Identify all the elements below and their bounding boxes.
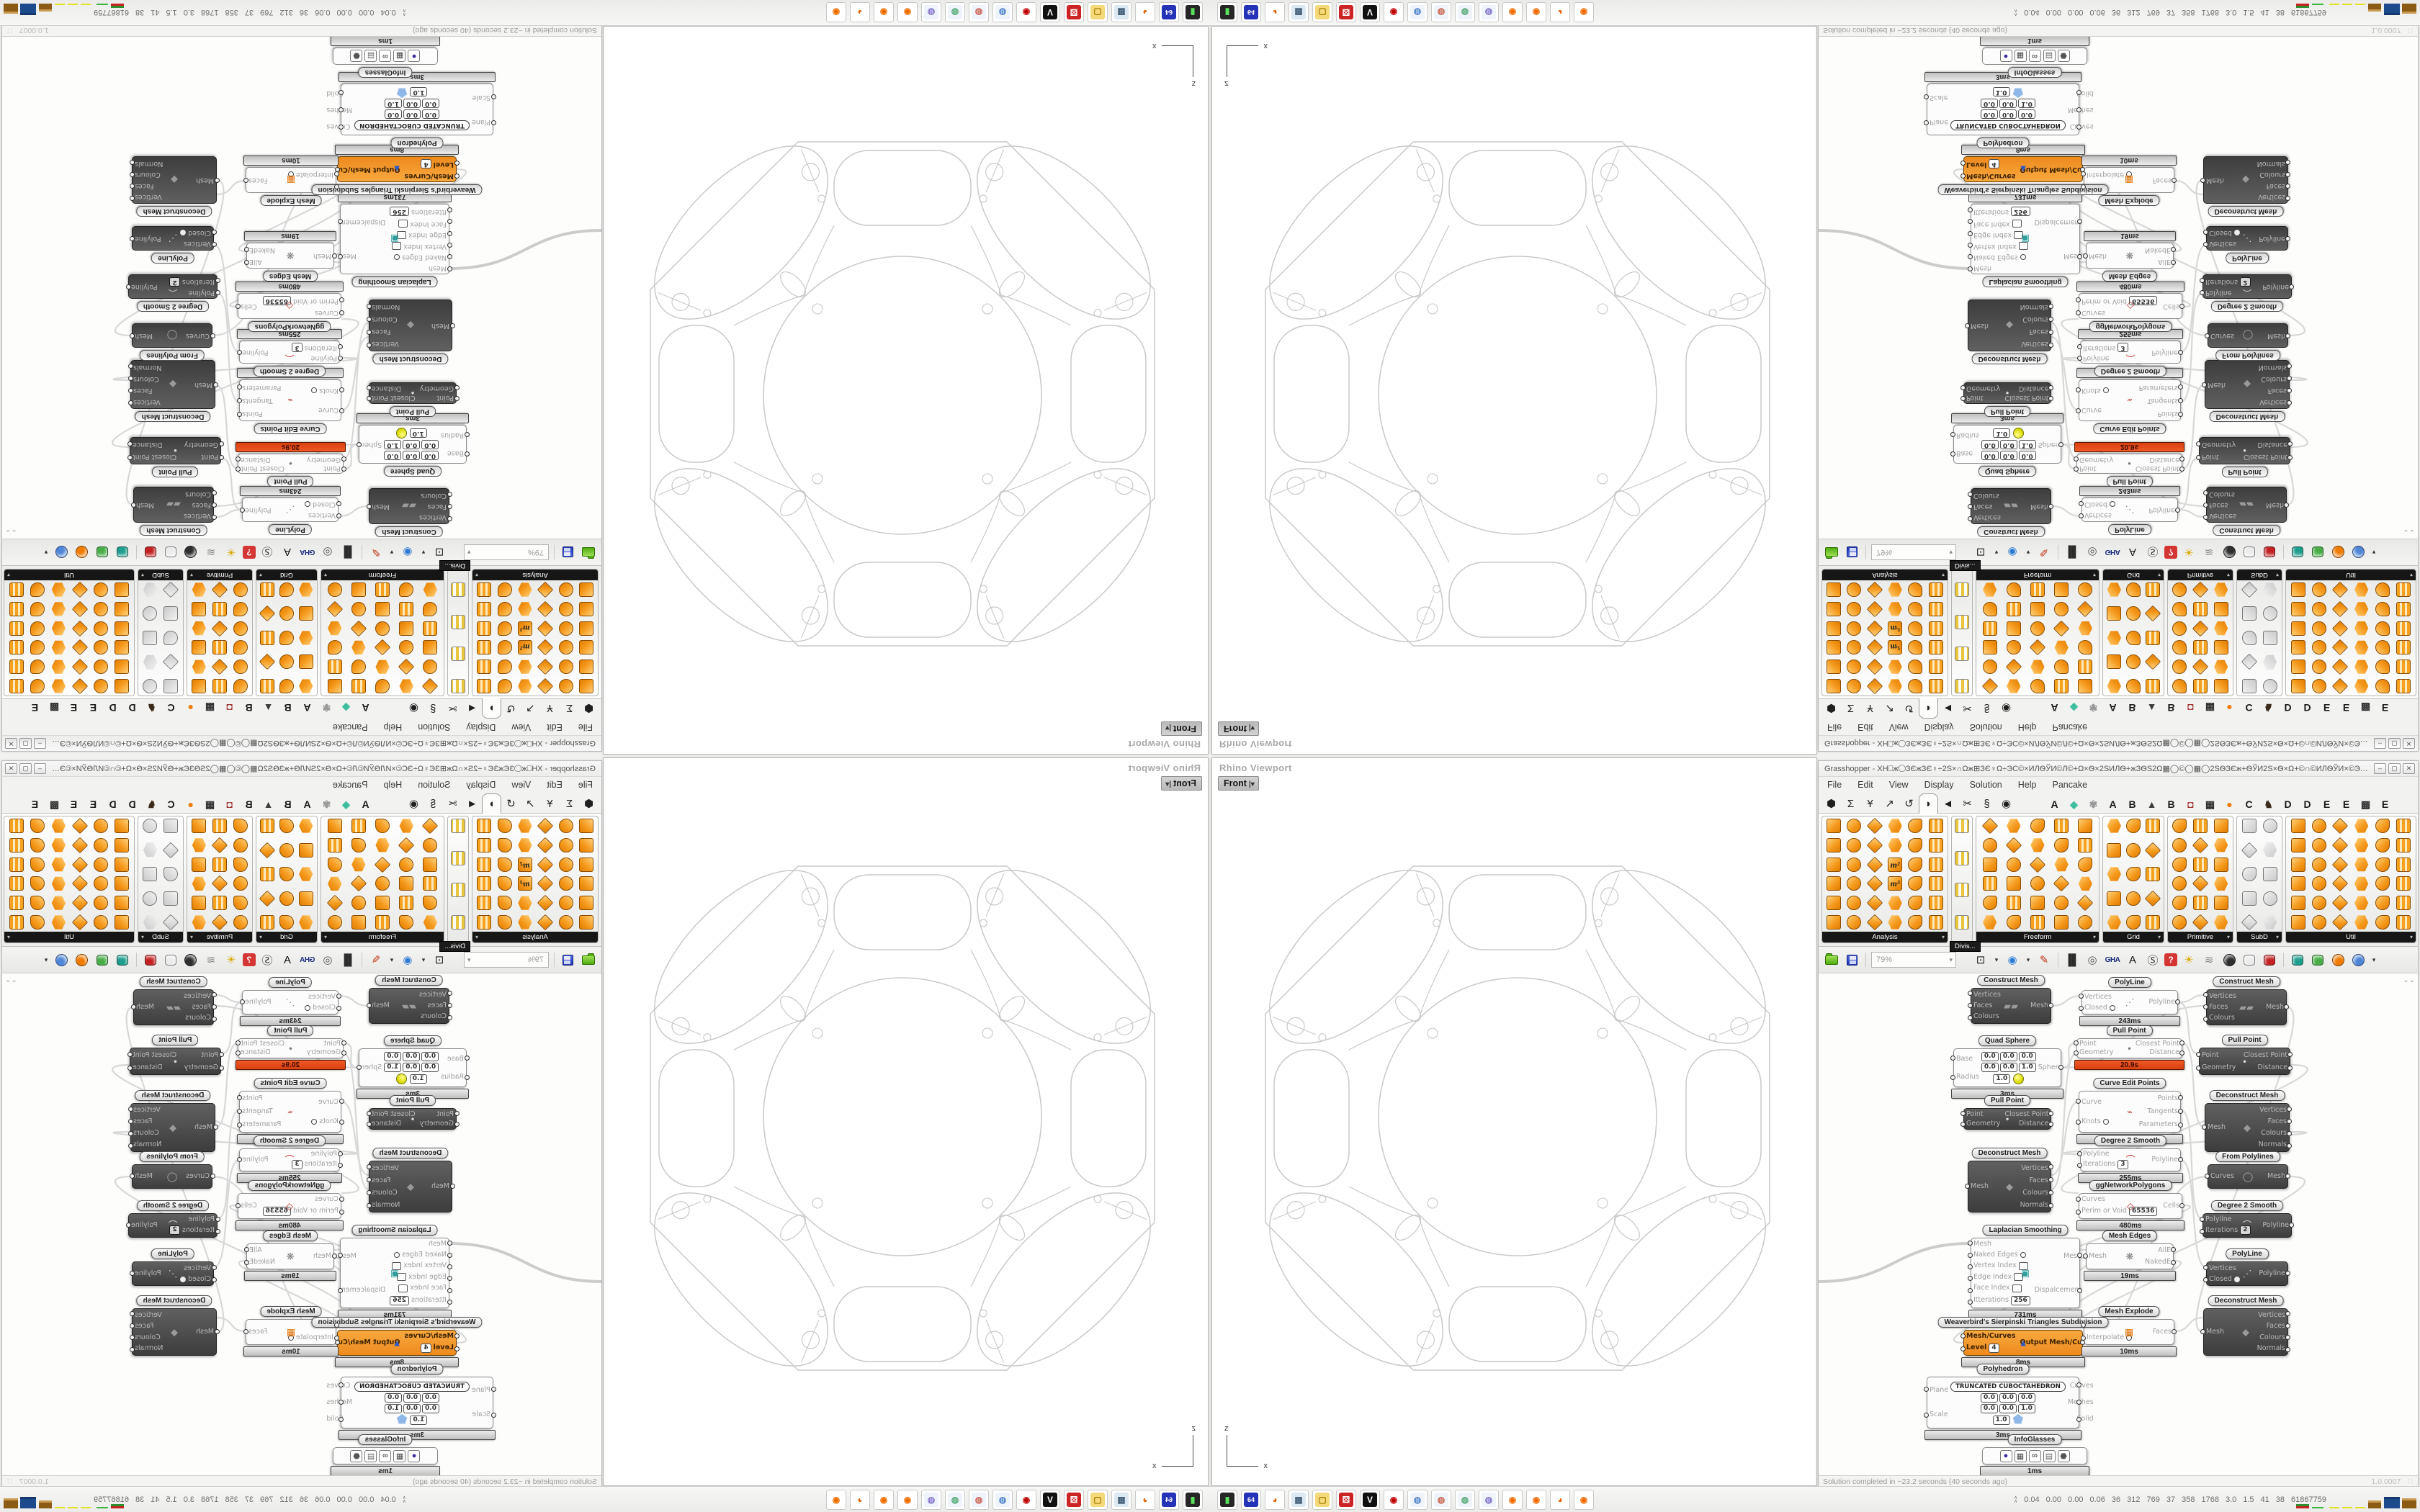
component-icon[interactable] <box>1846 895 1862 911</box>
output-port[interactable] <box>2076 125 2081 130</box>
firefox-icon[interactable]: ◕ <box>850 2 870 22</box>
component-icon[interactable] <box>2213 857 2229 873</box>
component-icon[interactable] <box>351 601 367 617</box>
component-icon[interactable] <box>1826 914 1842 930</box>
input-port[interactable] <box>2203 1265 2208 1270</box>
component-icon[interactable] <box>72 582 88 598</box>
plugin-tab-17[interactable]: E <box>2375 699 2395 716</box>
input-port[interactable] <box>212 992 217 997</box>
component-icon[interactable] <box>1982 876 1998 891</box>
component-icon[interactable] <box>2192 601 2208 617</box>
node-quad-sphere[interactable]: BaseRadius0.00.00.00.00.01.01.0Sphere <box>1953 1048 2061 1087</box>
component-icon[interactable] <box>2375 582 2390 598</box>
component-icon[interactable] <box>2172 818 2187 834</box>
zoom-dropdown-arrow[interactable]: ▾ <box>1992 544 2001 561</box>
component-icon[interactable] <box>191 639 207 655</box>
component-icon[interactable] <box>2192 876 2208 891</box>
panel-label-freeform[interactable]: Freeform▾ <box>1976 932 2099 942</box>
component-icon[interactable] <box>1928 857 1944 873</box>
input-port[interactable] <box>454 386 460 391</box>
number-field[interactable]: 1.0 <box>410 429 427 438</box>
input-port[interactable] <box>465 452 470 457</box>
input-port[interactable] <box>215 1229 220 1234</box>
component-icon[interactable] <box>578 621 594 636</box>
plugin-tab-6[interactable]: B <box>2161 796 2181 813</box>
output-port[interactable] <box>367 330 372 335</box>
finder-icon[interactable]: Ⓢ <box>2144 951 2161 968</box>
input-port[interactable] <box>212 1265 217 1270</box>
input-port[interactable] <box>1965 323 1970 328</box>
calculator-icon[interactable]: ▦ <box>1289 2 1309 22</box>
number-field[interactable]: 1.0 <box>1993 88 2010 97</box>
component-icon[interactable] <box>2375 895 2390 911</box>
component-icon[interactable] <box>1826 621 1842 636</box>
component-icon[interactable] <box>259 842 275 858</box>
grasshopper-window[interactable]: Grasshopper - ХН⎕ж◯ЗЄжЗЄ♀÷2S×∩Ωж⊞ЗЄ♀Ω÷ЭС… <box>1 760 602 1488</box>
component-icon[interactable] <box>497 818 513 834</box>
component-icon[interactable] <box>2290 837 2306 853</box>
sketch-pencil-icon[interactable]: ✎ <box>2035 544 2053 561</box>
panel-expand-arrow[interactable]: ▾ <box>2410 570 2413 580</box>
component-icon[interactable] <box>497 876 513 891</box>
input-port[interactable] <box>447 492 452 497</box>
panel-label-util[interactable]: Util▾ <box>2286 932 2416 942</box>
component-icon[interactable] <box>1982 621 1998 636</box>
component-icon[interactable] <box>351 818 367 834</box>
component-icon[interactable] <box>2396 876 2411 891</box>
output-port[interactable] <box>335 1340 340 1345</box>
component-icon[interactable] <box>450 882 466 898</box>
component-icon[interactable] <box>2375 876 2390 891</box>
node-deconstruct-mesh[interactable]: MeshVerticesFacesColoursNormals◆ <box>132 1308 217 1356</box>
component-icon[interactable] <box>578 639 594 655</box>
input-port[interactable] <box>341 1040 346 1045</box>
component-icon[interactable] <box>1826 582 1842 598</box>
component-icon[interactable] <box>2311 582 2327 598</box>
input-port[interactable] <box>219 1066 224 1071</box>
output-port[interactable] <box>2178 398 2183 403</box>
plugin-tab-17[interactable]: E <box>25 796 45 813</box>
component-icon[interactable] <box>93 837 109 853</box>
component-icon[interactable] <box>2332 818 2348 834</box>
input-port[interactable] <box>219 442 224 447</box>
component-icon[interactable] <box>279 678 295 694</box>
component-icon[interactable] <box>476 582 492 598</box>
component-icon[interactable] <box>351 678 367 694</box>
blue-dropdown-arrow[interactable]: ▾ <box>42 951 50 968</box>
component-icon[interactable] <box>1982 837 1998 853</box>
component-icon[interactable] <box>2172 621 2187 636</box>
input-port[interactable] <box>2081 184 2086 189</box>
component-icon[interactable] <box>163 891 179 906</box>
component-icon[interactable] <box>2077 876 2093 891</box>
input-port[interactable] <box>212 490 217 495</box>
preview-red-cylinder[interactable] <box>2261 951 2278 968</box>
component-icon[interactable] <box>558 895 574 911</box>
component-icon[interactable] <box>298 866 314 882</box>
output-port[interactable] <box>130 1323 135 1328</box>
output-port[interactable] <box>130 333 135 338</box>
preview-dark-ball[interactable] <box>182 544 200 561</box>
component-icon[interactable] <box>30 678 45 694</box>
preview-green-cylinder[interactable] <box>94 544 111 561</box>
preview-blue-ball[interactable] <box>53 544 71 561</box>
component-icon[interactable] <box>2213 818 2229 834</box>
floppy64-icon[interactable]: 64 <box>1159 1490 1179 1510</box>
node-construct-mesh[interactable]: VerticesFacesColoursMesh▰▰ <box>1971 988 2051 1024</box>
node-pull-point[interactable]: PointGeometryClosest PointDistance• <box>238 454 344 474</box>
script-icon[interactable]: A <box>279 951 296 968</box>
zoom-dropdown-arrow[interactable]: ▾ <box>1949 549 1953 557</box>
output-port[interactable] <box>240 999 245 1004</box>
area-moment-icon[interactable]: m² <box>1887 857 1903 873</box>
component-icon[interactable] <box>114 582 130 598</box>
component-icon[interactable] <box>2006 818 2022 834</box>
output-port[interactable] <box>2287 364 2292 369</box>
component-icon[interactable] <box>537 601 553 617</box>
component-icon[interactable] <box>351 639 367 655</box>
component-icon[interactable] <box>72 601 88 617</box>
component-icon[interactable] <box>2332 601 2348 617</box>
output-port[interactable] <box>2287 389 2292 394</box>
component-icon[interactable] <box>2213 582 2229 598</box>
component-icon[interactable] <box>2396 857 2411 873</box>
grasshopper-window[interactable]: Grasshopper - ХН⎕ж◯ЗЄжЗЄ♀÷2S×∩Ωж⊞ЗЄ♀Ω÷ЭС… <box>1818 760 2419 1488</box>
component-icon[interactable] <box>2354 837 2370 853</box>
component-icon[interactable] <box>2030 818 2045 834</box>
component-icon[interactable] <box>375 639 390 655</box>
node-mesh-edges[interactable]: MeshAllENakedE❋ <box>2086 1243 2174 1269</box>
component-icon[interactable] <box>93 857 109 873</box>
component-icon[interactable] <box>143 891 158 906</box>
component-icon[interactable] <box>2077 914 2093 930</box>
component-icon[interactable] <box>558 837 574 853</box>
zoom-dropdown-arrow[interactable]: ▾ <box>1949 956 1953 964</box>
component-icon[interactable] <box>50 876 66 891</box>
blender-icon[interactable]: ◉ <box>1502 2 1523 22</box>
component-icon[interactable] <box>2396 582 2411 598</box>
input-port[interactable] <box>1968 1015 1973 1020</box>
expand-chevrons-icon[interactable]: ∧∧ <box>2014 1496 2017 1503</box>
output-port[interactable] <box>126 1223 131 1228</box>
tab-surface[interactable]: ◗ <box>1919 793 1938 814</box>
media-disc-icon[interactable]: ◉ <box>1384 2 1404 22</box>
preview-red-cylinder[interactable] <box>142 951 159 968</box>
component-icon[interactable] <box>9 639 24 655</box>
node-polyline[interactable]: VerticesClosedPolyline⋰ <box>242 990 339 1014</box>
component-icon[interactable] <box>1846 621 1862 636</box>
component-icon[interactable] <box>2106 606 2122 622</box>
component-icon[interactable] <box>2192 857 2208 873</box>
system-monitor-icon[interactable]: ▮ <box>1217 2 1237 22</box>
number-field[interactable]: 0.0 <box>421 1063 439 1072</box>
file-manager-icon[interactable]: ▢ <box>1088 1490 1108 1510</box>
component-icon[interactable] <box>2311 659 2327 675</box>
plugin-tab-0[interactable]: A <box>2045 699 2064 716</box>
output-port[interactable] <box>244 260 249 265</box>
component-icon[interactable] <box>2332 914 2348 930</box>
panel-label-subd[interactable]: SubD▾ <box>2237 570 2282 580</box>
plugin-tab-8[interactable]: ▦ <box>2200 699 2220 716</box>
component-icon[interactable] <box>30 857 45 873</box>
component-icon[interactable] <box>327 639 343 655</box>
number-field[interactable]: 1.0 <box>385 1404 402 1413</box>
output-port[interactable] <box>2048 397 2053 402</box>
output-port[interactable] <box>2048 504 2053 509</box>
output-port[interactable] <box>2076 107 2081 112</box>
menu-file[interactable]: File <box>1827 780 1842 790</box>
component-icon[interactable] <box>2125 606 2141 622</box>
component-icon[interactable] <box>497 601 513 617</box>
component-icon[interactable] <box>2262 630 2278 646</box>
help-box-icon[interactable]: ? <box>2164 953 2177 966</box>
input-port[interactable] <box>2203 1277 2208 1282</box>
component-icon[interactable] <box>2213 678 2229 694</box>
panel-expand-arrow[interactable]: ▾ <box>1942 570 1945 580</box>
component-icon[interactable] <box>114 837 130 853</box>
component-icon[interactable] <box>2396 659 2411 675</box>
output-port[interactable] <box>2076 90 2081 95</box>
tab-mesh[interactable]: ◄ <box>1938 796 1958 813</box>
component-icon[interactable] <box>2213 895 2229 911</box>
output-port[interactable] <box>2287 1066 2293 1071</box>
output-port[interactable] <box>2048 1190 2053 1195</box>
node-construct-mesh[interactable]: VerticesFacesColoursMesh▰▰ <box>369 988 449 1024</box>
component-icon[interactable] <box>1887 818 1903 834</box>
component-icon[interactable] <box>114 818 130 834</box>
plugin-tab-11[interactable]: ♞ <box>142 699 161 716</box>
output-port[interactable] <box>367 1190 372 1195</box>
component-icon[interactable] <box>1907 582 1923 598</box>
node-deconstruct-mesh[interactable]: MeshVerticesFacesColoursNormals◆ <box>1968 1161 2051 1212</box>
maximize-button[interactable]: ▢ <box>2388 738 2401 749</box>
preview-teal-cylinder[interactable] <box>114 951 131 968</box>
component-icon[interactable] <box>497 621 513 636</box>
menu-file[interactable]: File <box>578 780 593 790</box>
component-icon[interactable] <box>72 659 88 675</box>
calculator-icon[interactable]: ▦ <box>1111 2 1131 22</box>
component-icon[interactable] <box>1826 601 1842 617</box>
component-icon[interactable] <box>2332 678 2348 694</box>
component-icon[interactable] <box>2354 639 2370 655</box>
component-icon[interactable] <box>93 818 109 834</box>
input-port[interactable] <box>2074 456 2079 462</box>
component-icon[interactable] <box>212 621 228 636</box>
input-port[interactable] <box>447 1288 452 1293</box>
output-port[interactable] <box>2080 1340 2085 1345</box>
preview-dropdown-arrow[interactable]: ▾ <box>387 544 396 561</box>
component-icon[interactable] <box>50 659 66 675</box>
output-port[interactable] <box>2178 350 2183 355</box>
node-curve-edit-points[interactable]: CurveKnotsPointsTangentsParameters⌁ <box>239 1091 341 1133</box>
component-icon[interactable] <box>93 876 109 891</box>
camera-icon[interactable]: ▐▌ <box>2063 544 2081 561</box>
number-field[interactable]: 1.0 <box>2018 99 2035 109</box>
component-icon[interactable] <box>163 582 179 598</box>
node-pull-point[interactable]: PointGeometryClosest PointDistance• <box>130 1048 221 1075</box>
input-port[interactable] <box>447 991 452 996</box>
blender-icon[interactable]: ◉ <box>1574 2 1594 22</box>
component-icon[interactable] <box>2106 891 2122 906</box>
input-port[interactable] <box>1960 1346 1966 1351</box>
component-icon[interactable] <box>1954 818 1970 834</box>
node-infoglasses[interactable]: ●▦∞▤⬣ <box>1982 48 2087 65</box>
output-port[interactable] <box>128 1131 133 1136</box>
output-port[interactable] <box>2058 442 2063 447</box>
zoom-dropdown-arrow[interactable]: ▾ <box>467 549 471 557</box>
calculator-icon[interactable]: ▦ <box>1289 1490 1309 1510</box>
number-field[interactable]: 1.0 <box>1993 1416 2010 1425</box>
output-port[interactable] <box>237 1109 242 1114</box>
component-icon[interactable] <box>30 639 45 655</box>
output-port[interactable] <box>2179 467 2184 472</box>
component-icon[interactable] <box>93 639 109 655</box>
input-port[interactable] <box>2200 1329 2205 1334</box>
component-icon[interactable] <box>1907 876 1923 891</box>
component-icon[interactable] <box>2172 601 2187 617</box>
input-port[interactable] <box>212 1004 217 1009</box>
panel-label-analysis[interactable]: Analysis▾ <box>472 570 598 580</box>
canvas-collapse-icon[interactable]: ⌄⌄ <box>5 978 17 983</box>
paint-app-icon[interactable]: ◍ <box>945 1490 965 1510</box>
resize-grip[interactable]: ∷ <box>2408 27 2414 35</box>
output-port[interactable] <box>236 456 241 462</box>
input-port[interactable] <box>447 220 452 225</box>
gha-plugin-icon[interactable]: GHA <box>2104 544 2121 561</box>
node-construct-mesh[interactable]: VerticesFacesColoursMesh▰▰ <box>369 488 449 524</box>
plugin-tab-14[interactable]: E <box>2317 699 2336 716</box>
component-icon[interactable] <box>233 818 248 834</box>
input-port[interactable] <box>1968 504 1973 509</box>
panel-expand-arrow[interactable]: ▾ <box>2276 932 2279 942</box>
plugin-tab-6[interactable]: B <box>239 699 259 716</box>
number-field[interactable]: 0.0 <box>422 1404 439 1413</box>
menu-display[interactable]: Display <box>466 722 496 732</box>
node-laplacian-smoothing[interactable]: MeshNaked EdgesVertex IndexEdge IndexFac… <box>1971 1238 2080 1308</box>
component-icon[interactable] <box>558 914 574 930</box>
plugin-tab-3[interactable]: A <box>2103 699 2123 716</box>
maximize-button[interactable]: ▢ <box>19 763 32 774</box>
component-icon[interactable] <box>1887 895 1903 911</box>
component-icon[interactable] <box>279 654 295 670</box>
calculator-icon[interactable]: ▦ <box>1111 1490 1131 1510</box>
panel-label-grid[interactable]: Grid▾ <box>256 932 317 942</box>
node-from-polylines[interactable]: CurvesMesh◯ <box>132 1164 212 1189</box>
maximize-button[interactable]: ▢ <box>2388 763 2401 774</box>
input-port[interactable] <box>339 1099 344 1104</box>
node-polyline[interactable]: VerticesClosedPolyline⋰ <box>132 1261 214 1286</box>
input-port[interactable] <box>491 1413 496 1418</box>
node-deconstruct-mesh[interactable]: MeshVerticesFacesColoursNormals◆ <box>2205 360 2290 409</box>
input-port[interactable] <box>2196 1052 2201 1057</box>
input-port[interactable] <box>219 1052 224 1057</box>
component-icon[interactable] <box>2332 837 2348 853</box>
component-icon[interactable] <box>9 601 24 617</box>
grasshopper-canvas[interactable]: ⌄⌄ Construct MeshVerticesFacesColoursMes… <box>2 973 601 1475</box>
component-icon[interactable] <box>1846 678 1862 694</box>
output-port[interactable] <box>367 1177 372 1182</box>
component-icon[interactable] <box>1846 601 1862 617</box>
node-quad-sphere[interactable]: BaseRadius0.00.00.00.00.01.01.0Sphere <box>359 1048 467 1087</box>
input-port[interactable] <box>2202 382 2207 387</box>
zoom-dropdown-arrow[interactable]: ▾ <box>419 951 428 968</box>
output-port[interactable] <box>2179 1040 2184 1045</box>
component-icon[interactable] <box>114 857 130 873</box>
component-icon[interactable] <box>558 818 574 834</box>
expand-chevrons-icon[interactable]: ∧∧ <box>403 1496 406 1503</box>
output-port[interactable] <box>126 284 131 289</box>
plugin-tab-5[interactable]: ▲ <box>2142 796 2161 813</box>
component-icon[interactable] <box>398 659 414 675</box>
panel-expand-arrow[interactable]: ▾ <box>259 932 262 942</box>
output-port[interactable] <box>2172 1329 2177 1334</box>
output-port[interactable] <box>2077 1253 2082 1258</box>
component-icon[interactable] <box>2172 678 2187 694</box>
plugin-tab-16[interactable]: ▩ <box>2356 699 2375 716</box>
panel-expand-arrow[interactable]: ▾ <box>1942 932 1945 942</box>
input-port[interactable] <box>1968 1300 1973 1305</box>
number-field[interactable]: 1.0 <box>384 1063 401 1072</box>
plugin-tab-14[interactable]: E <box>2317 796 2336 813</box>
component-icon[interactable] <box>327 818 343 834</box>
component-icon[interactable] <box>191 621 207 636</box>
component-icon[interactable] <box>2145 606 2161 622</box>
plugin-tab-8[interactable]: ▦ <box>2200 796 2220 813</box>
grasshopper-title-bar[interactable]: Grasshopper - ХН⎕ж◯ЗЄжЗЄ♀÷2S×∩Ωж⊞ЗЄ♀Ω÷ЭС… <box>1819 735 2418 751</box>
input-port[interactable] <box>215 1329 220 1334</box>
node-polyhedron[interactable]: PlaneScaleTRUNCATED CUBOCTAHEDRON0.00.00… <box>341 1377 493 1428</box>
component-icon[interactable] <box>1928 837 1944 853</box>
component-icon[interactable] <box>422 914 438 930</box>
floppy64-icon[interactable]: 64 <box>1241 1490 1261 1510</box>
menu-file[interactable]: File <box>1827 722 1842 732</box>
minimize-button[interactable]: – <box>2374 738 2386 749</box>
input-port[interactable] <box>454 161 460 166</box>
component-icon[interactable] <box>1887 582 1903 598</box>
preview-blue-ball[interactable] <box>2349 544 2367 561</box>
canvas-zoom-input[interactable]: 79%▾ <box>464 544 549 560</box>
output-port[interactable] <box>128 1143 133 1148</box>
blender-icon[interactable]: ◉ <box>826 2 846 22</box>
node-mesh-edges[interactable]: MeshAllENakedE❋ <box>246 243 334 269</box>
output-port[interactable] <box>2179 304 2184 309</box>
component-icon[interactable] <box>259 891 275 906</box>
component-icon[interactable] <box>2332 659 2348 675</box>
number-field[interactable]: 0.0 <box>2019 451 2036 461</box>
output-port[interactable] <box>2048 1122 2053 1127</box>
component-icon[interactable] <box>517 678 533 694</box>
component-icon[interactable] <box>327 876 343 891</box>
component-icon[interactable] <box>2290 678 2306 694</box>
component-icon[interactable] <box>30 659 45 675</box>
input-port[interactable] <box>339 1210 344 1215</box>
grasshopper-window[interactable]: Grasshopper - ХН⎕ж◯ЗЄжЗЄ♀÷2S×∩Ωж⊞ЗЄ♀Ω÷ЭС… <box>1818 24 2419 752</box>
node-infoglasses[interactable]: ●▦∞▤⬣ <box>1982 1447 2087 1464</box>
node-construct-mesh[interactable]: VerticesFacesColoursMesh▰▰ <box>1971 488 2051 524</box>
component-icon[interactable] <box>578 876 594 891</box>
component-icon[interactable] <box>163 818 179 834</box>
plugin-tab-5[interactable]: ▲ <box>259 699 278 716</box>
component-icon[interactable] <box>143 818 158 834</box>
node-deconstruct-mesh[interactable]: MeshVerticesFacesColoursNormals◆ <box>132 156 217 204</box>
number-field[interactable]: 1.0 <box>2019 1063 2036 1072</box>
component-icon[interactable] <box>2213 639 2229 655</box>
output-port[interactable] <box>2179 1050 2184 1056</box>
component-icon[interactable] <box>9 857 24 873</box>
component-icon[interactable] <box>497 639 513 655</box>
input-port[interactable] <box>491 94 496 99</box>
tab-mesh[interactable]: ◄ <box>1938 699 1958 716</box>
